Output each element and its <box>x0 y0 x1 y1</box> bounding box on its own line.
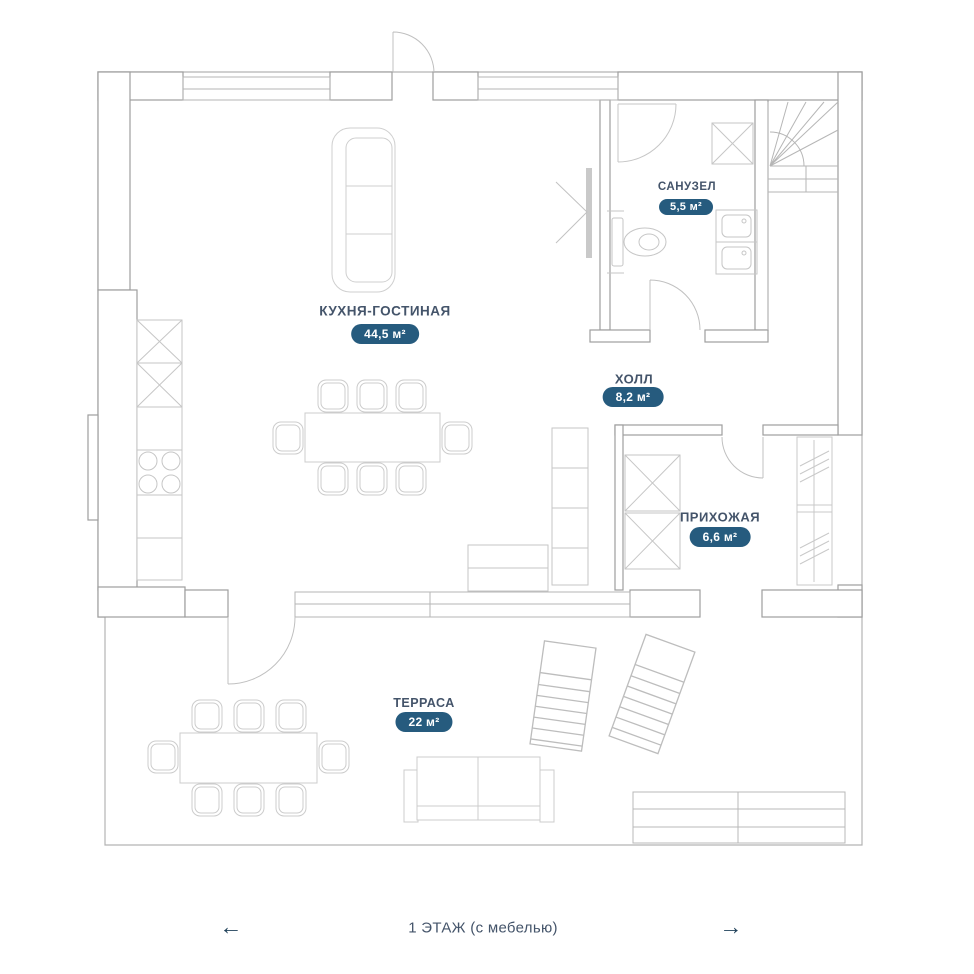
sliding-door <box>556 168 592 258</box>
room-label-hall: ХОЛЛ <box>615 372 653 387</box>
terrace-table <box>180 733 317 783</box>
entrance-steps <box>633 792 845 843</box>
area-badge-hall: 8,2 м² <box>603 387 664 407</box>
living-sofa <box>332 128 395 292</box>
lounger <box>530 641 596 751</box>
dining-table <box>305 413 440 462</box>
area-badge-kitchen-living: 44,5 м² <box>351 324 419 344</box>
area-badge-terrace: 22 м² <box>395 712 452 732</box>
room-label-kitchen-living: КУХНЯ-ГОСТИНАЯ <box>319 304 450 319</box>
floor-plan-page: КУХНЯ-ГОСТИНАЯ 44,5 м² САНУЗЕЛ 5,5 м² ХО… <box>0 0 974 974</box>
area-badge-entry: 6,6 м² <box>690 527 751 547</box>
entry-shelving <box>468 428 588 591</box>
glazed-front-door <box>797 437 832 585</box>
door-to-terrace <box>228 617 295 684</box>
room-label-entry: ПРИХОЖАЯ <box>680 510 760 525</box>
dining-set-terrace <box>148 700 349 816</box>
vent-shaft <box>712 123 753 164</box>
door-top-entry <box>393 32 434 73</box>
area-badge-bathroom: 5,5 м² <box>659 199 713 215</box>
door-bathroom <box>650 280 700 330</box>
stove <box>137 450 182 495</box>
wardrobe <box>625 455 680 569</box>
washer-dryer-stack <box>716 210 757 274</box>
sun-loungers <box>530 634 695 753</box>
kitchen-cabinets <box>137 320 182 580</box>
dining-set-living <box>273 380 472 495</box>
lounger <box>609 634 695 753</box>
toilet <box>607 211 666 273</box>
floor-caption: 1 ЭТАЖ (с мебелью) <box>408 920 558 937</box>
shower <box>618 104 676 162</box>
left-arrow-icon[interactable]: ← <box>220 916 243 939</box>
terrace-sofa <box>404 757 554 822</box>
right-arrow-icon[interactable]: → <box>720 916 743 939</box>
floor-plan-drawing <box>0 0 974 974</box>
staircase <box>768 102 838 330</box>
room-label-terrace: ТЕРРАСА <box>393 696 455 710</box>
room-label-bathroom: САНУЗЕЛ <box>658 181 716 193</box>
door-entry-hall <box>722 437 763 478</box>
